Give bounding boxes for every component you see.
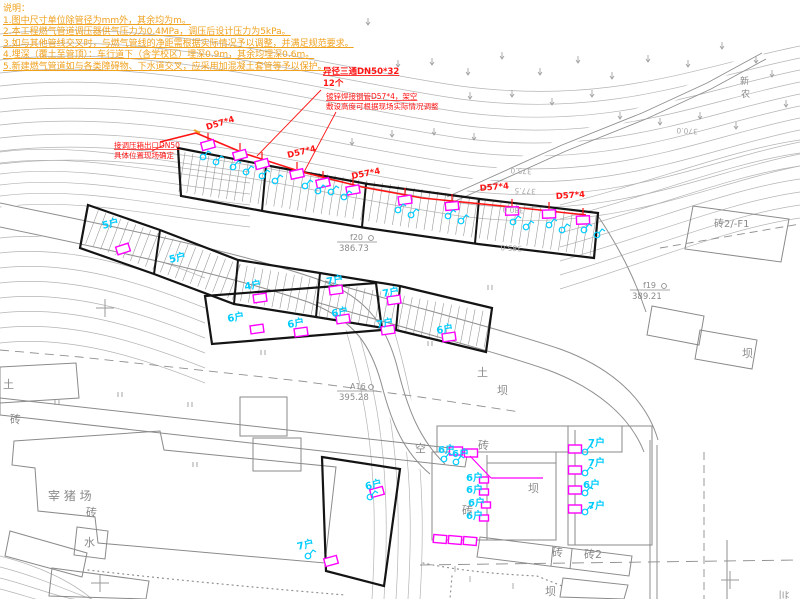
pipe-spec-label: D57*4 — [351, 167, 382, 182]
place-label: 砖 — [86, 505, 97, 519]
gas-meter-box — [346, 185, 360, 195]
contour-elevation-label: 380.0 — [502, 205, 524, 215]
grid-cross-icon — [91, 574, 109, 592]
riser-icon — [395, 207, 401, 213]
note-line-3: 3.如与其他管线交叉时，与燃气管线的净距需根据实际情况予以调整，并满足规范要求。 — [3, 39, 363, 51]
hatch-line — [242, 162, 248, 202]
gas-meter-box — [569, 466, 582, 474]
place-label: 兰 — [777, 590, 790, 599]
contour-elevation-label: 377.5 — [514, 186, 536, 196]
gas-meter-box — [445, 201, 459, 210]
survey-point-elevation: 386.73 — [339, 244, 369, 254]
place-label: 坝 — [497, 383, 508, 397]
household-count-label: 6户 — [583, 478, 600, 491]
hatch-line — [187, 154, 193, 194]
riser-icon — [413, 209, 419, 213]
gas-meter-box — [569, 486, 582, 494]
hatch-line — [282, 168, 288, 208]
riser-icon — [458, 218, 464, 224]
dashed-boundary — [420, 560, 800, 565]
gas-meter-box — [576, 216, 589, 224]
hatch-line — [566, 212, 572, 252]
contour-line — [0, 281, 205, 323]
place-label: 空 — [415, 441, 426, 455]
place-label: 砖 — [552, 545, 563, 559]
gas-meter-box — [250, 324, 264, 334]
pipe-material-callout: 敷设高度可根据现场实际情况调整 — [326, 101, 439, 111]
gas-meter-box — [569, 445, 582, 453]
divider-wall — [475, 199, 479, 243]
gas-meter-box — [233, 149, 248, 160]
hatch-line — [195, 155, 201, 195]
dotted-boundary — [423, 563, 562, 586]
pipe-spec-label: D57*4 — [556, 190, 586, 202]
riser-icon — [453, 459, 459, 465]
pipe-spec-label: D57*4 — [205, 115, 236, 133]
household-count-label: 6户 — [466, 471, 483, 484]
hatch-line — [432, 192, 438, 232]
cad-drawing-canvas[interactable]: D57*4D57*4D57*4D57*4D57*4接调压箱出口DN50具体位置现… — [0, 0, 800, 599]
hatch-line — [440, 193, 446, 233]
inlet-callout: 接调压箱出口DN50 — [114, 140, 180, 150]
gas-meter-box — [463, 536, 477, 545]
riser-icon — [515, 216, 521, 220]
riser-icon — [277, 175, 283, 179]
riser-icon — [564, 224, 570, 228]
place-label: 坝 — [545, 584, 556, 598]
riser-icon — [302, 183, 308, 189]
riser-icon — [305, 553, 311, 559]
hatch-line — [203, 156, 209, 196]
household-count-label: 6户 — [452, 447, 469, 460]
riser-icon — [546, 222, 552, 228]
hatch-line — [226, 160, 232, 200]
gas-meter-box — [201, 139, 216, 150]
survey-point-id: f20 — [350, 233, 363, 242]
pipe-material-callout: 镀锌焊接钢管D57*4，架空 — [326, 91, 417, 101]
note-line-4: 4.埋深（覆土至管顶）：车行道下（含学校区）埋深0.9m，其余均埋深0.6m。 — [3, 50, 363, 62]
household-count-label: 7户 — [588, 499, 605, 512]
contour-line — [0, 296, 205, 338]
grid-cross-icon — [96, 299, 114, 317]
place-label: 砖2/-F1 — [714, 217, 749, 230]
riser-icon — [333, 186, 339, 190]
building — [560, 578, 628, 599]
place-label: 砖 — [10, 412, 21, 426]
contour-line — [0, 266, 205, 308]
dotted-boundary — [88, 570, 345, 595]
place-label: 宰 猪 场 — [48, 488, 92, 503]
leader-line — [304, 112, 336, 172]
riser-icon — [310, 550, 316, 554]
road-fill — [650, 440, 704, 599]
place-label: 坝 — [528, 481, 539, 495]
hatch-line — [527, 206, 533, 246]
riser-icon — [341, 194, 347, 200]
drawing-notes: 说明： 1.图中尺寸单位除管径为mm外，其余均为m。 2.本工程燃气管道调压器供… — [3, 4, 363, 73]
gas-meter-box — [542, 210, 555, 218]
survey-point-icon — [369, 385, 374, 390]
grid-cross-icon — [721, 571, 739, 589]
topographic-map-svg[interactable]: D57*4D57*4D57*4D57*4D57*4接调压箱出口DN50具体位置现… — [0, 0, 800, 599]
household-count-label: 7户 — [588, 436, 605, 449]
divider-wall — [362, 184, 366, 227]
hatch-line — [495, 201, 501, 241]
survey-point-icon — [369, 236, 374, 241]
note-line-2: 2.本工程燃气管道调压器供气压力为0.4MPa，调压后设计压力为5kPa。 — [3, 27, 363, 39]
household-count-label: 6户 — [466, 483, 483, 496]
building — [5, 531, 87, 577]
household-count-label: 6户 — [226, 309, 245, 325]
hatch-line — [305, 172, 311, 212]
building — [240, 397, 287, 436]
hatch-line — [219, 158, 225, 198]
notes-header: 说明： — [3, 4, 363, 16]
gas-meter-box — [569, 505, 582, 513]
survey-point-id: A16 — [350, 382, 366, 391]
riser-icon — [528, 221, 534, 225]
gas-meter-box — [448, 535, 462, 544]
gas-meter-box — [433, 534, 447, 543]
riser-icon — [523, 224, 529, 230]
building — [253, 438, 301, 471]
riser-icon — [582, 509, 588, 515]
gas-meter-box — [290, 169, 304, 180]
pipe-spec-label: D57*4 — [479, 181, 509, 194]
gas-meter-box — [253, 293, 267, 303]
inlet-callout: 具体位置现场确定 — [114, 150, 174, 160]
place-label: 新 — [740, 75, 749, 87]
survey-point-elevation: 395.28 — [339, 393, 369, 403]
note-line-5: 5.新建燃气管道如与各类障碍物、下水道交叉，应采用加混凝土套管等予以保护。 — [3, 62, 363, 74]
household-count-label: 7户 — [588, 456, 605, 469]
riser-icon — [200, 154, 206, 160]
note-line-1: 1.图中尺寸单位除管径为mm外，其余均为m。 — [3, 16, 363, 28]
contour-line — [0, 311, 205, 353]
contour-elevation-label: 370.0 — [676, 126, 698, 136]
survey-point-icon — [662, 284, 667, 289]
dotted-boundary — [450, 576, 452, 599]
hatch-line — [250, 163, 256, 203]
riser-icon — [582, 470, 588, 476]
contour-line — [0, 341, 205, 383]
hatch-line — [535, 208, 541, 248]
place-label: 农 — [741, 88, 750, 100]
black-building — [322, 457, 400, 586]
place-label: 砖 — [478, 438, 489, 452]
building — [647, 306, 704, 345]
riser-icon — [599, 229, 605, 233]
place-label: 水 — [84, 536, 95, 549]
place-label: 土 — [3, 378, 14, 391]
place-label: 砖 — [462, 503, 473, 517]
building-zhuan2-f1 — [685, 206, 789, 262]
tee-callout: 12个 — [323, 78, 344, 89]
contour-line — [0, 326, 205, 368]
riser-icon — [248, 166, 254, 170]
gas-meter-box — [316, 178, 330, 189]
hatch-line — [274, 167, 280, 207]
contour-elevation-label: 375.0 — [510, 166, 532, 176]
gas-meter-box — [398, 195, 412, 205]
riser-icon — [582, 490, 588, 496]
place-label: 坝 — [742, 346, 753, 360]
survey-point-id: f19 — [643, 281, 656, 290]
riser-icon — [230, 164, 236, 170]
riser-icon — [408, 212, 414, 218]
contour-elevation-label: 385.0 — [500, 243, 522, 253]
path-fill — [447, 51, 762, 195]
place-label: 土 — [477, 366, 488, 379]
wall — [570, 549, 572, 569]
place-label: 砖2 — [584, 547, 602, 561]
survey-point-elevation: 389.21 — [632, 292, 662, 302]
gas-meter-box — [255, 158, 270, 169]
